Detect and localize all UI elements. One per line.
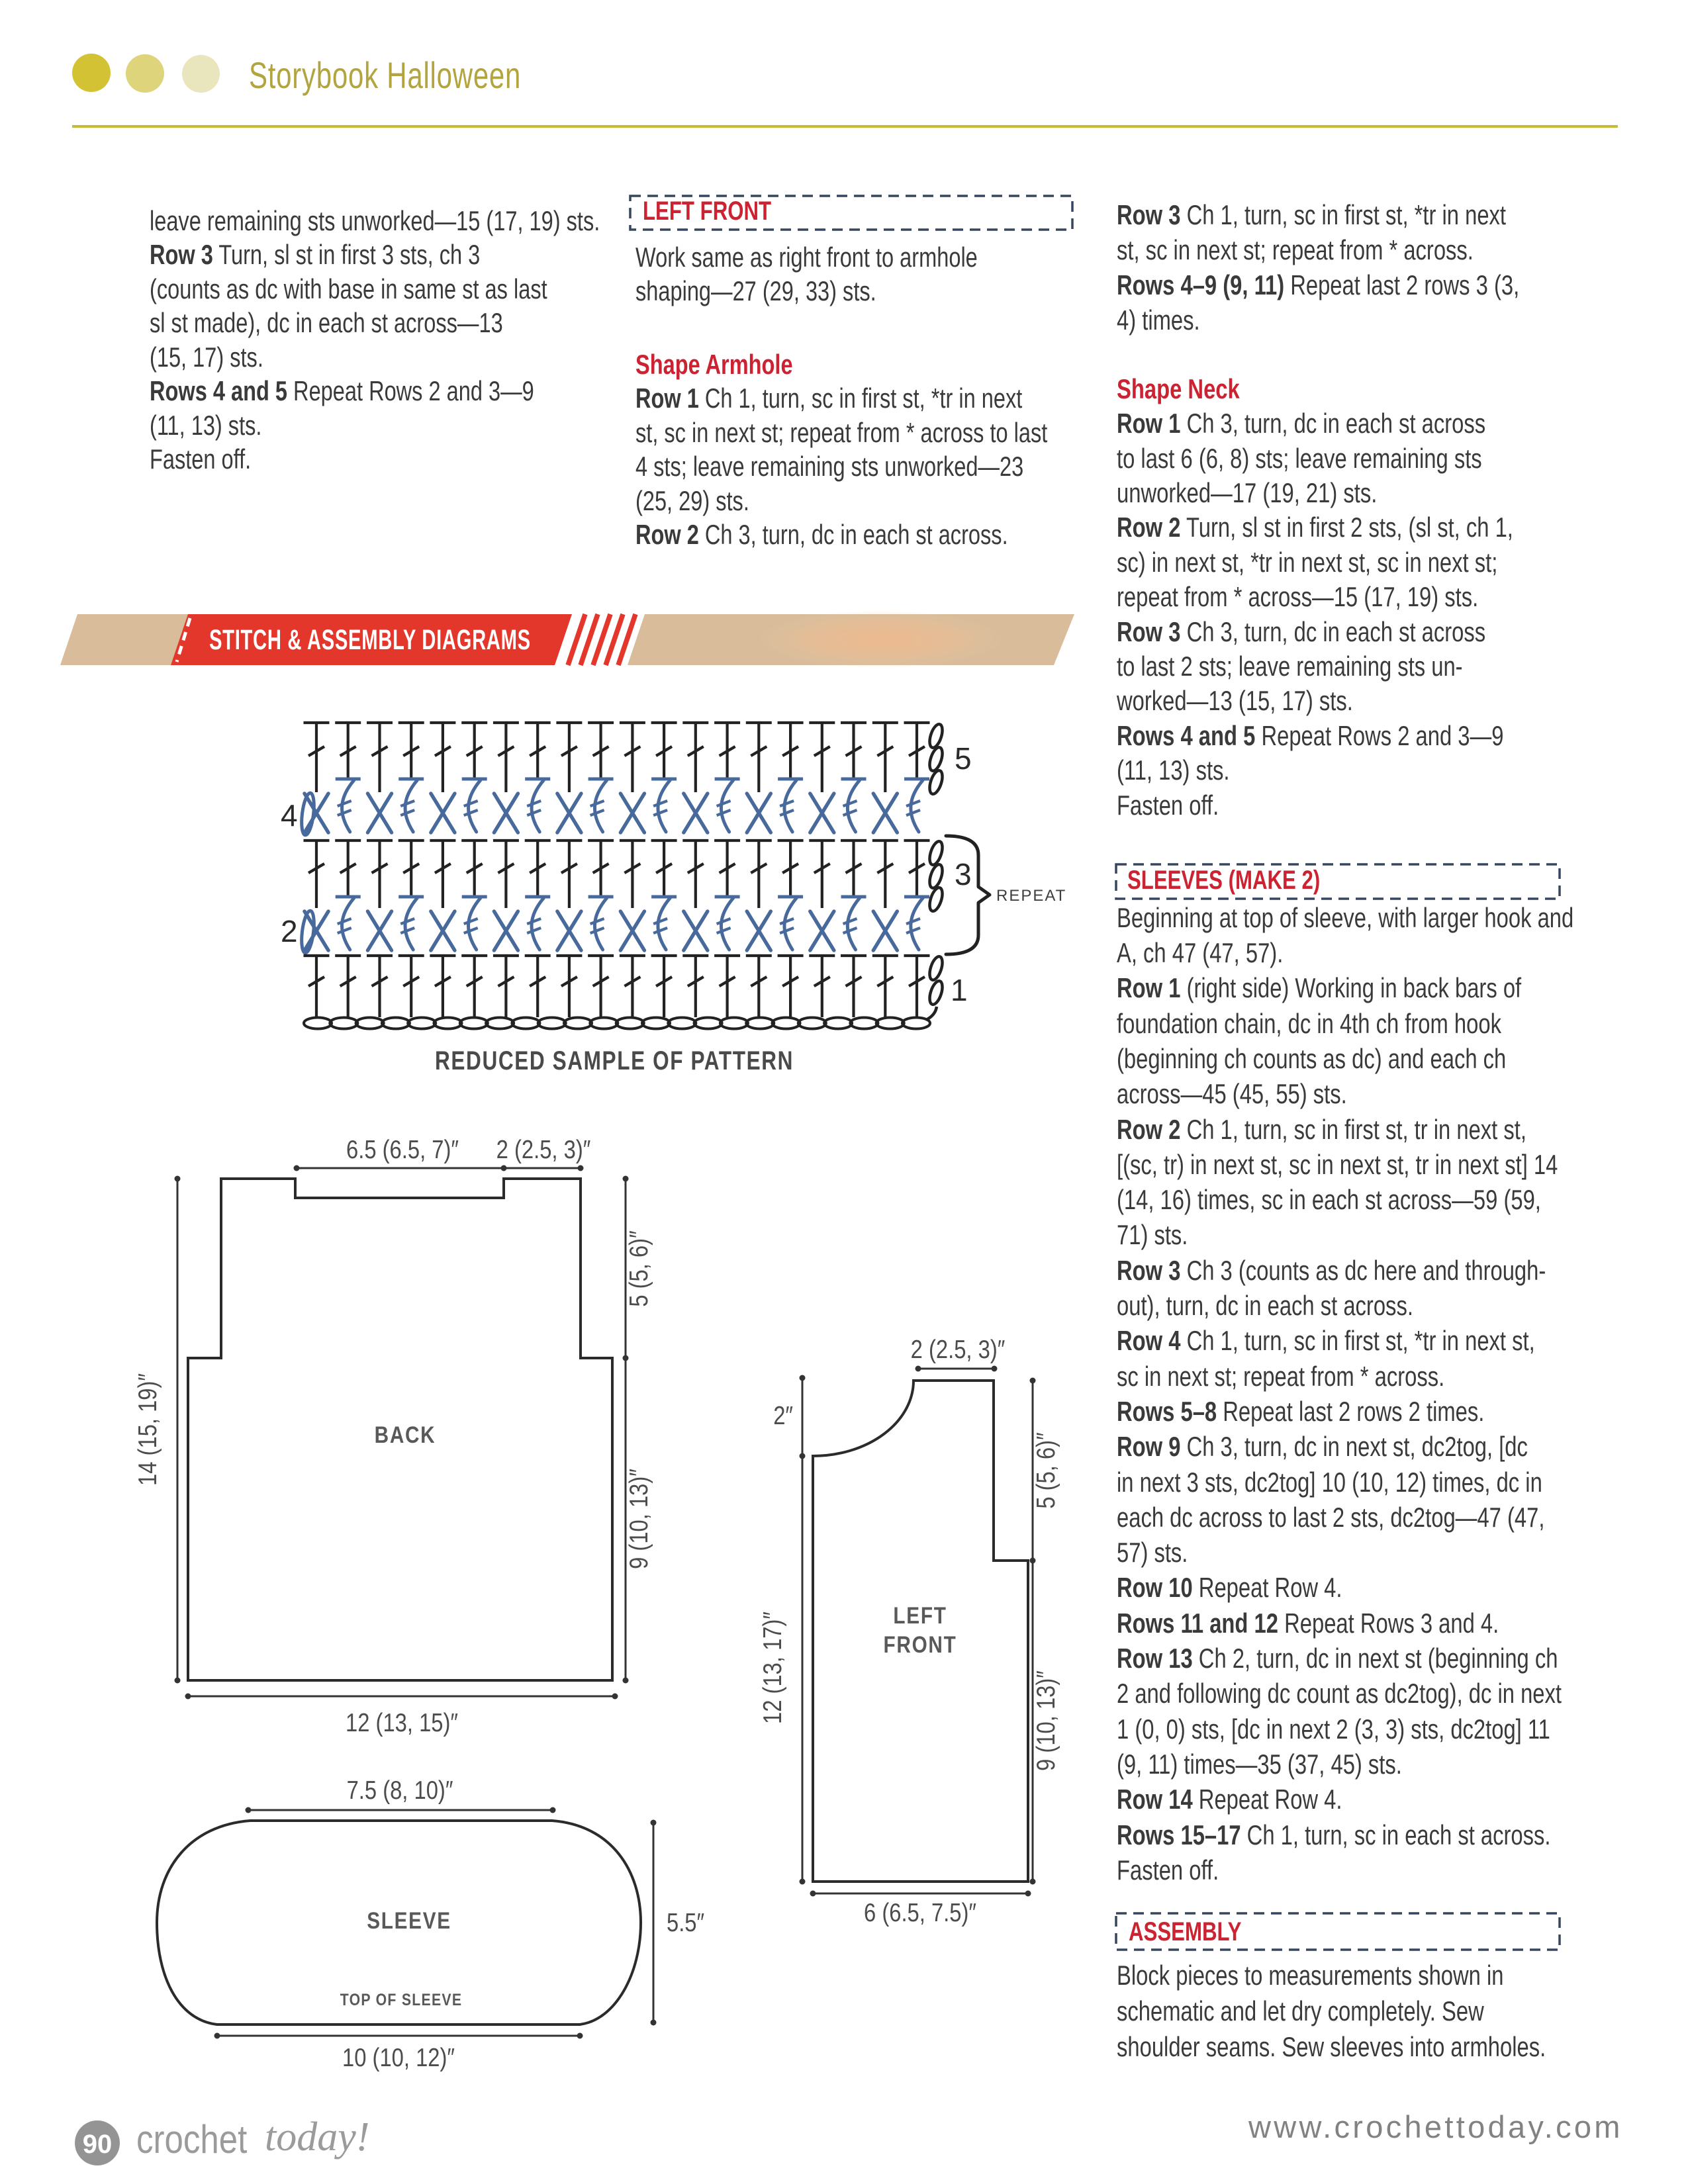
svg-text:TOP OF SLEEVE: TOP OF SLEEVE: [340, 1990, 463, 2009]
svg-text:1: 1: [951, 973, 968, 1007]
svg-text:7.5 (8, 10)″: 7.5 (8, 10)″: [347, 1775, 453, 1804]
svg-text:FRONT: FRONT: [884, 1632, 957, 1658]
svg-text:REPEAT: REPEAT: [996, 887, 1066, 905]
svg-text:10 (10, 12)″: 10 (10, 12)″: [342, 2042, 455, 2071]
svg-text:5 (5, 6)″: 5 (5, 6)″: [624, 1230, 653, 1307]
svg-text:2 (2.5, 3)″: 2 (2.5, 3)″: [496, 1134, 591, 1163]
svg-text:5 (5, 6)″: 5 (5, 6)″: [1031, 1432, 1060, 1509]
svg-text:REDUCED SAMPLE OF PATTERN: REDUCED SAMPLE OF PATTERN: [435, 1045, 794, 1075]
svg-text:14 (15, 19)″: 14 (15, 19)″: [132, 1373, 162, 1486]
svg-text:STITCH & ASSEMBLY DIAGRAMS: STITCH & ASSEMBLY DIAGRAMS: [209, 623, 531, 655]
svg-text:6 (6.5, 7.5)″: 6 (6.5, 7.5)″: [864, 1897, 976, 1927]
svg-text:6.5 (6.5, 7)″: 6.5 (6.5, 7)″: [346, 1134, 459, 1163]
svg-text:2 (2.5, 3)″: 2 (2.5, 3)″: [911, 1334, 1006, 1363]
svg-text:4: 4: [281, 798, 298, 833]
svg-text:3: 3: [955, 857, 972, 891]
svg-text:9 (10, 13)″: 9 (10, 13)″: [624, 1469, 653, 1569]
svg-text:12 (13, 15)″: 12 (13, 15)″: [346, 1707, 458, 1737]
svg-text:12 (13, 17)″: 12 (13, 17)″: [757, 1612, 786, 1724]
svg-text:5.5″: 5.5″: [667, 1907, 704, 1936]
svg-text:9 (10, 13)″: 9 (10, 13)″: [1031, 1670, 1060, 1771]
svg-text:BACK: BACK: [375, 1422, 436, 1448]
svg-text:LEFT: LEFT: [893, 1603, 947, 1629]
svg-text:SLEEVE: SLEEVE: [367, 1908, 451, 1934]
svg-text:5: 5: [955, 741, 972, 776]
svg-text:2″: 2″: [773, 1400, 793, 1430]
svg-text:2: 2: [281, 914, 298, 948]
